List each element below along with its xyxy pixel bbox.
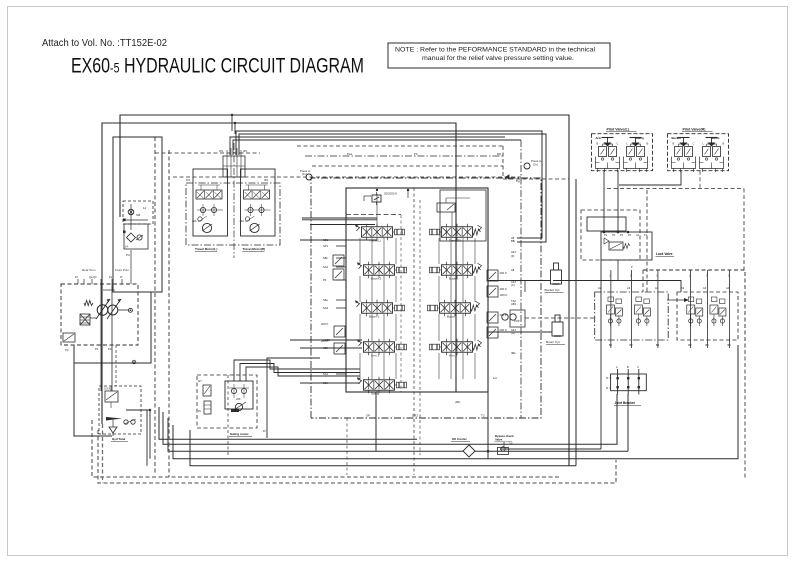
svg-text:A3: A3 (627, 286, 631, 290)
svg-text:200 K: 200 K (500, 328, 507, 332)
svg-text:Joint Bracket: Joint Bracket (615, 401, 636, 405)
svg-text:3 K: 3 K (509, 442, 513, 446)
svg-text:Pa1: Pa1 (347, 152, 352, 156)
svg-text:C: C (689, 274, 691, 278)
svg-text:A2: A2 (681, 286, 685, 290)
svg-text:200 K: 200 K (500, 271, 507, 275)
svg-text:Pr: Pr (120, 275, 123, 279)
svg-text:A8: A8 (511, 268, 515, 272)
svg-text:C: C (617, 142, 619, 146)
svg-text:POP: POP (514, 319, 520, 323)
svg-text:(3R): (3R) (455, 400, 460, 404)
svg-text:SP1: SP1 (323, 244, 329, 248)
svg-text:1P1: 1P1 (186, 179, 191, 182)
svg-text:Lock Valve: Lock Valve (656, 252, 673, 256)
svg-text:Arm: Arm (596, 136, 602, 140)
svg-text:Arm 2: Arm 2 (449, 354, 457, 358)
svg-text:Travel Motor(R): Travel Motor(R) (243, 247, 266, 251)
svg-text:SM: SM (136, 213, 141, 217)
svg-text:DR: DR (497, 152, 501, 156)
svg-text:Hyd Tank: Hyd Tank (112, 437, 126, 441)
svg-text:C: C (706, 274, 708, 278)
svg-text:Pilot Valve(L): Pilot Valve(L) (607, 128, 630, 132)
svg-text:Pp: Pp (65, 348, 69, 352)
svg-text:200 K: 200 K (500, 293, 507, 297)
svg-text:Qa Qb: Qa Qb (89, 275, 97, 279)
svg-text:SA4: SA4 (323, 265, 329, 269)
svg-text:C: C (630, 274, 632, 278)
svg-text:Travel(L): Travel(L) (369, 239, 381, 243)
svg-text:Bucket: Bucket (449, 277, 458, 281)
svg-text:0.5 K: 0.5 K (104, 387, 111, 391)
svg-text:S8a: S8a (323, 298, 328, 302)
svg-text:Front Pum: Front Pum (115, 268, 130, 272)
svg-text:manual for the relief valve pr: manual for the relief valve pressure set… (422, 55, 574, 62)
svg-text:200 K: 200 K (500, 287, 507, 291)
svg-text:4Bs: 4Bs (511, 351, 516, 355)
svg-text:A4: A4 (655, 286, 659, 290)
svg-text:SA6: SA6 (323, 306, 329, 310)
svg-text:C: C (693, 142, 695, 146)
svg-text:B: B (673, 142, 675, 146)
svg-text:(F): (F) (511, 254, 515, 258)
svg-text:NOTE : Refer to the PEFORMANCE: NOTE : Refer to the PEFORMANCE STANDARD … (395, 47, 596, 54)
svg-text:3P1: 3P1 (264, 179, 269, 182)
svg-text:B: B (723, 142, 725, 146)
svg-text:Swing: Swing (371, 392, 380, 396)
svg-text:SH: SH (198, 380, 202, 383)
svg-text:Oil Cooler: Oil Cooler (452, 437, 468, 441)
svg-text:Pg: Pg (516, 179, 520, 183)
svg-text:Boom 2: Boom 2 (371, 277, 382, 281)
svg-text:B8t: B8t (511, 239, 515, 243)
svg-text:Travel Motor(L): Travel Motor(L) (195, 247, 217, 251)
svg-text:1st: 1st (493, 376, 497, 380)
svg-text:A: A (607, 142, 609, 146)
svg-text:A2: A2 (598, 286, 602, 290)
svg-text:200 K: 200 K (321, 322, 328, 326)
svg-text:Bucket Cyl.: Bucket Cyl. (545, 288, 561, 292)
svg-text:D: D (713, 142, 715, 146)
svg-text:B: B (647, 142, 649, 146)
svg-text:D: D (637, 142, 639, 146)
svg-text:SP: SP (366, 414, 370, 418)
svg-text:A4: A4 (726, 286, 730, 290)
svg-text:(3+): (3+) (302, 172, 307, 176)
svg-text:S8k: S8k (323, 256, 328, 260)
svg-text:Rear Pum: Rear Pum (82, 268, 96, 272)
svg-text:B: B (597, 142, 599, 146)
svg-text:C: C (637, 366, 639, 369)
svg-text:A3: A3 (703, 286, 707, 290)
svg-text:P1: P1 (95, 347, 99, 351)
svg-text:200/250 K: 200/250 K (384, 192, 397, 196)
svg-text:1P1: 1P1 (219, 150, 224, 153)
svg-text:Swing motor: Swing motor (230, 432, 250, 436)
svg-text:TO: TO (612, 234, 615, 237)
svg-text:(3+): (3+) (533, 163, 538, 167)
svg-text:Pd: Pd (126, 253, 130, 257)
svg-text:Dr: Dr (263, 429, 266, 433)
svg-text:Valve: Valve (495, 438, 503, 442)
svg-text:20K: 20K (236, 397, 241, 401)
svg-text:Attach to Vol. No. :TT152E-02: Attach to Vol. No. :TT152E-02 (42, 38, 167, 49)
svg-text:2P1: 2P1 (243, 150, 248, 153)
svg-text:C: C (728, 274, 730, 278)
svg-text:14: 14 (143, 206, 147, 210)
svg-text:T2: T2 (481, 414, 485, 418)
svg-text:DR2: DR2 (412, 414, 418, 418)
svg-text:P3: P3 (323, 278, 327, 282)
svg-text:32A: 32A (240, 220, 245, 223)
svg-text:Pb: Pb (414, 152, 418, 156)
svg-text:A: A (683, 142, 685, 146)
svg-text:32A: 32A (192, 220, 197, 223)
svg-text:A8S: A8S (511, 302, 516, 306)
svg-text:(C): (C) (511, 283, 515, 287)
svg-text:A&T: A&T (511, 250, 517, 254)
svg-text:C: C (656, 274, 658, 278)
svg-text:Pilot Valve(R): Pilot Valve(R) (683, 128, 707, 132)
svg-text:P2: P2 (108, 347, 112, 351)
svg-text:Boom 1: Boom 1 (369, 315, 380, 319)
svg-text:Boom Cyl.: Boom Cyl. (546, 340, 560, 344)
svg-text:C: C (609, 274, 611, 278)
